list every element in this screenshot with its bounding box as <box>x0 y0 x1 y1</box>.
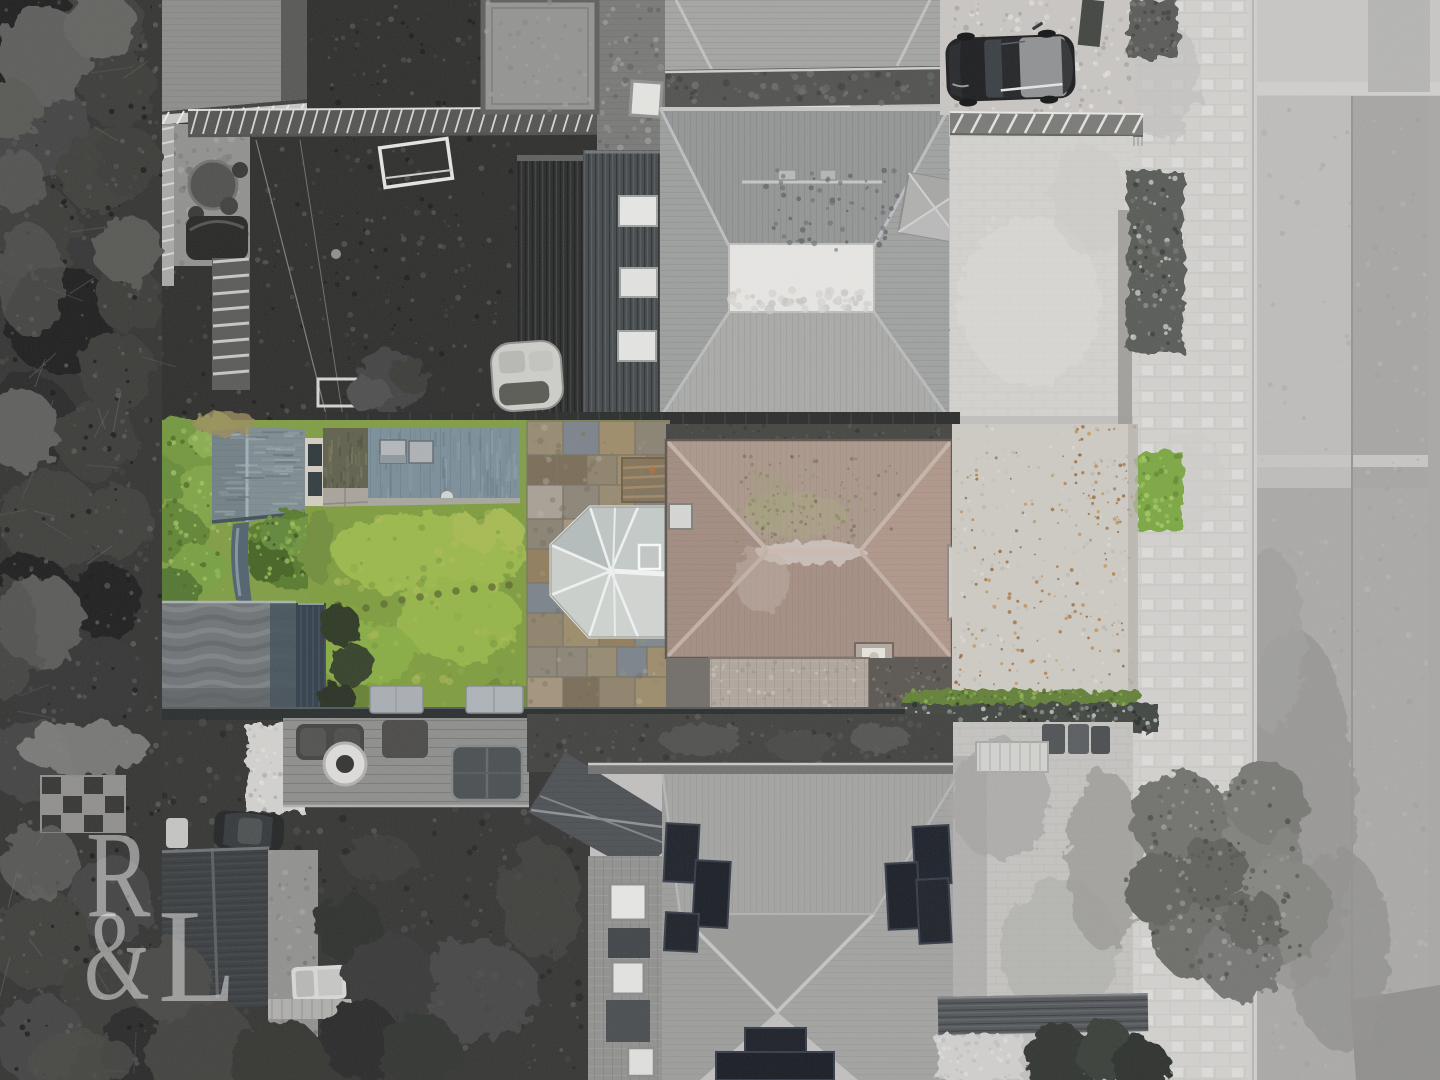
svg-text:L: L <box>158 883 237 1031</box>
svg-text:&: & <box>84 886 150 1028</box>
